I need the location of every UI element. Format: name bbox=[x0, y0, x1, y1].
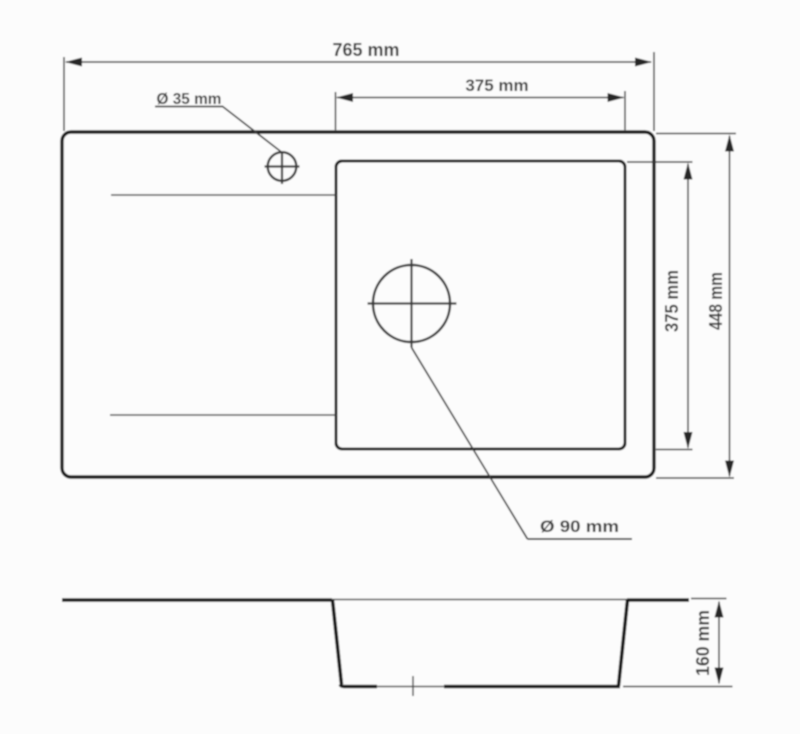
svg-text:765 mm: 765 mm bbox=[332, 40, 399, 60]
svg-text:160 mm: 160 mm bbox=[693, 610, 713, 676]
svg-text:448 mm: 448 mm bbox=[706, 272, 726, 330]
svg-text:375 mm: 375 mm bbox=[662, 270, 682, 332]
svg-text:375 mm: 375 mm bbox=[465, 76, 528, 95]
svg-text:Ø 90 mm: Ø 90 mm bbox=[540, 517, 619, 536]
svg-text:Ø 35 mm: Ø 35 mm bbox=[157, 91, 222, 108]
